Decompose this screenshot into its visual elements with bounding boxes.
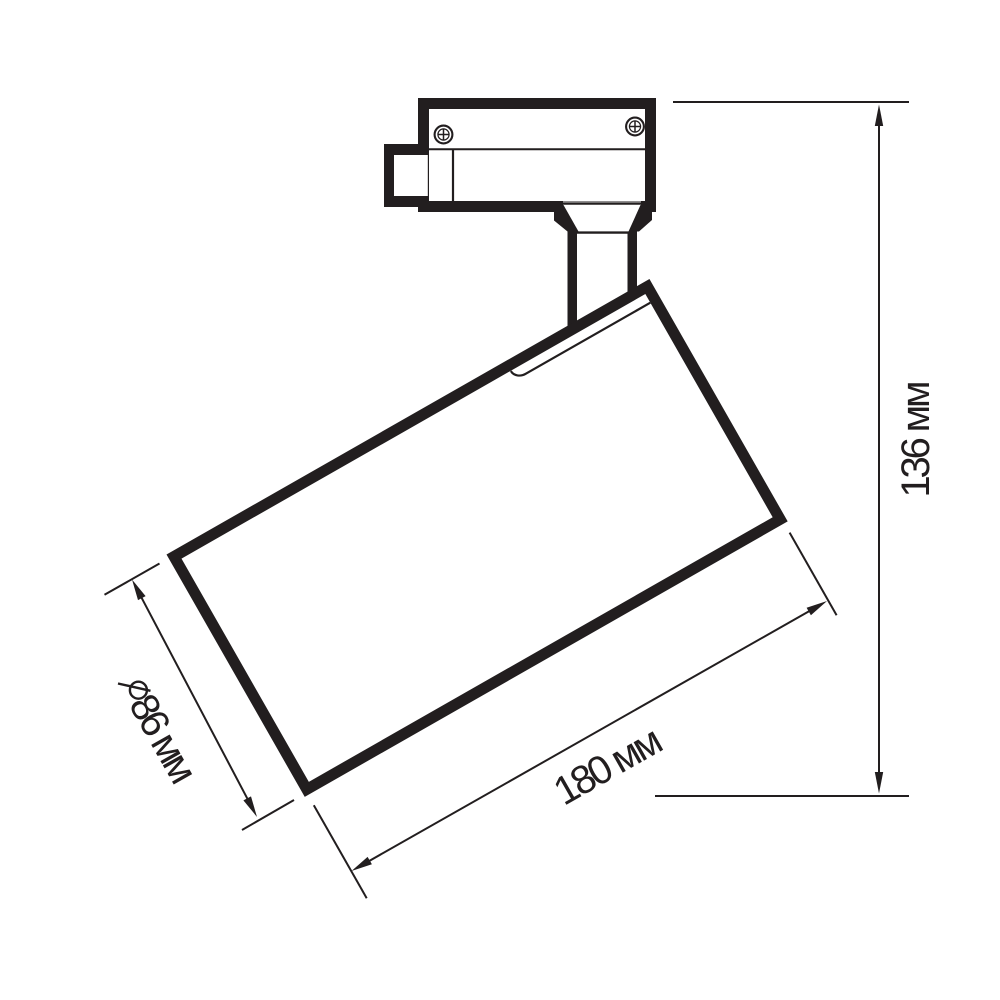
svg-text:136 мм: 136 мм — [894, 381, 938, 498]
